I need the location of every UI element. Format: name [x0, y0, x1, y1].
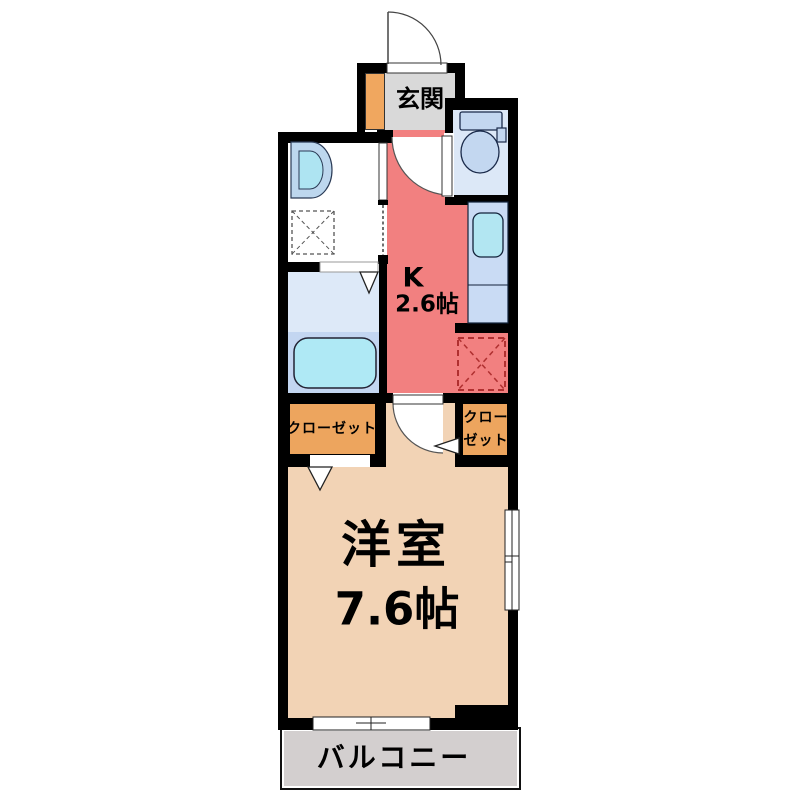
balcony-sliding-door-icon: [313, 717, 430, 730]
living-room-size-label: 7.6帖: [335, 587, 460, 632]
floor-plan-canvas: 玄関 K 2.6帖 クローゼット クロー ゼット 洋室 7.6帖 バルコニー: [0, 0, 800, 800]
kitchen-counter-icon: [468, 202, 508, 323]
closet-left-label: クローゼット: [287, 422, 377, 436]
kitchen-sink-icon: [473, 213, 503, 257]
genkan-label: 玄関: [396, 87, 444, 111]
entrance-door-icon: [387, 12, 447, 73]
toilet-icon: [460, 112, 506, 173]
fixtures-overlay: [0, 0, 800, 800]
washroom-sliding-door-icon: [378, 143, 388, 264]
bathroom-folding-door-icon: [360, 272, 378, 293]
closet-right-label-line2: ゼット: [464, 434, 509, 448]
toilet-door-swing-icon: [392, 133, 454, 197]
balcony-label: バルコニー: [317, 744, 471, 772]
kitchen-label: K: [403, 265, 424, 292]
living-door-swing-icon: [393, 395, 443, 453]
closet-left-door-icon: [308, 455, 370, 490]
kitchen-size-label: 2.6帖: [395, 294, 459, 317]
refrigerator-space-icon: [458, 338, 505, 390]
washing-machine-space-icon: [292, 211, 334, 254]
washroom-door-threshold: [320, 262, 378, 272]
living-room-label: 洋室: [341, 520, 451, 570]
closet-right-label-line1: クロー: [464, 411, 509, 425]
bathtub-icon: [294, 338, 376, 388]
sliding-window-icon: [505, 510, 519, 610]
washbasin-icon: [291, 142, 332, 198]
